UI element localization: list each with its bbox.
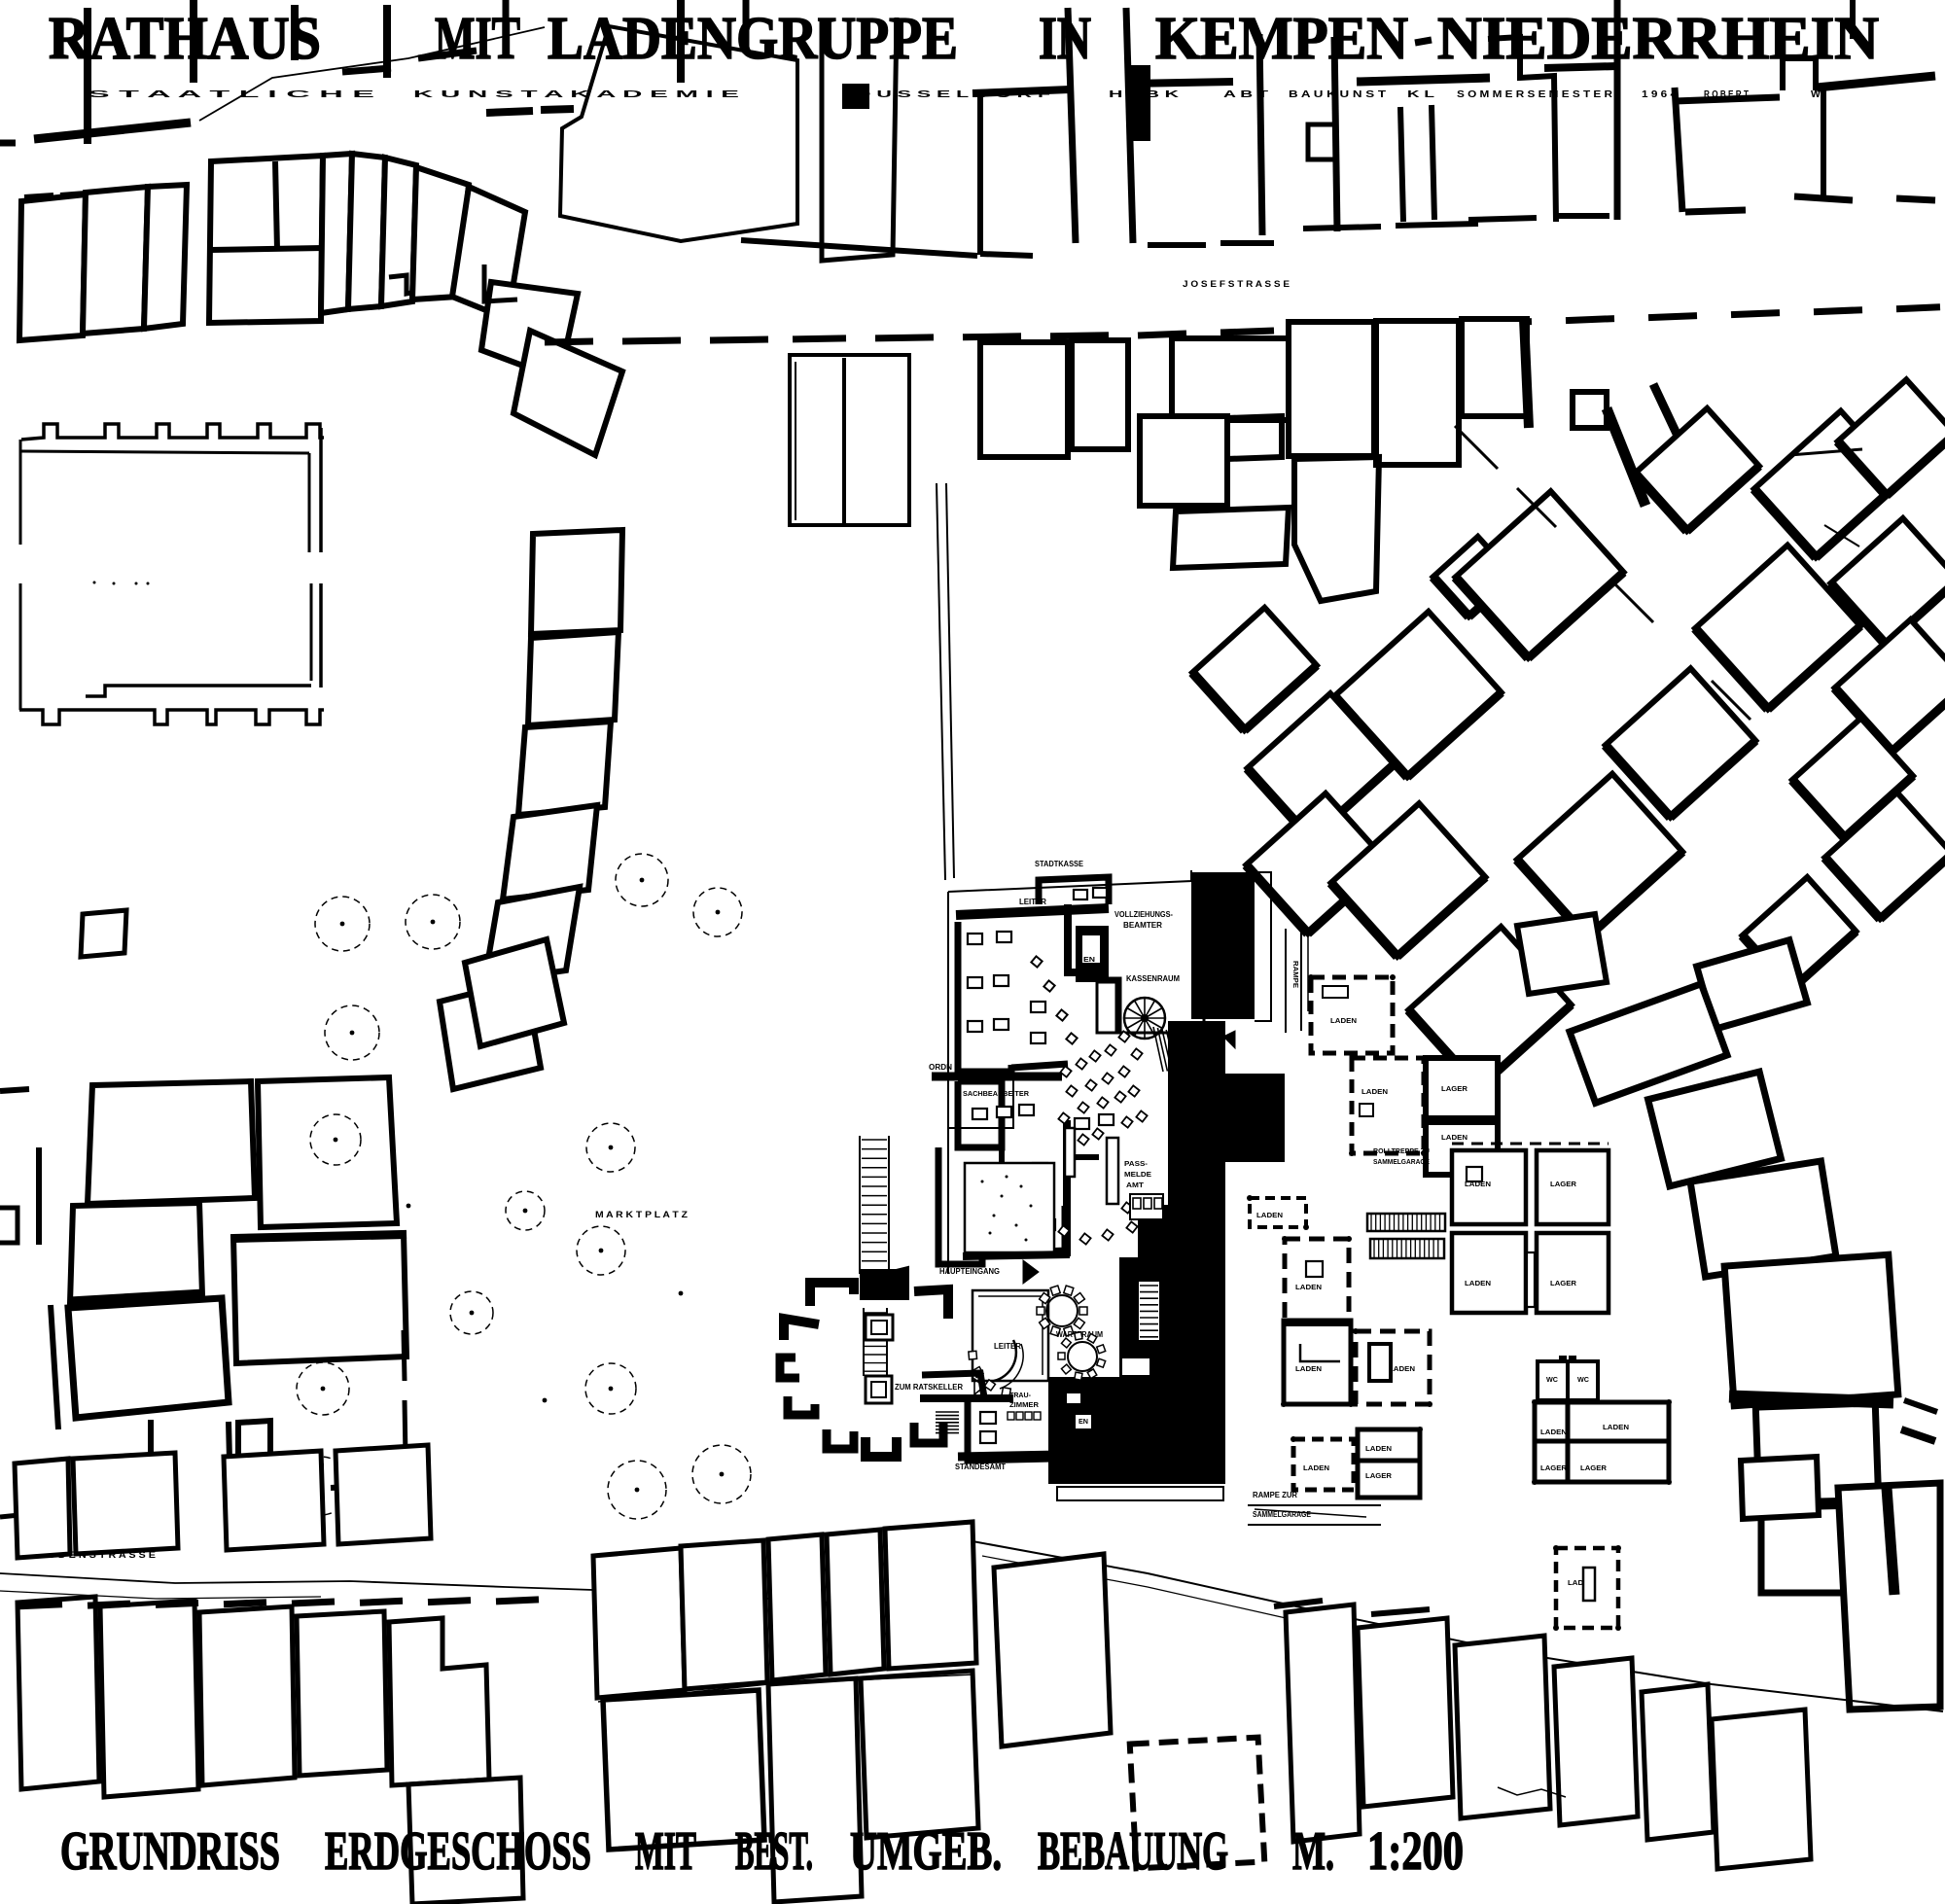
svg-text:1:200: 1:200 bbox=[1367, 1821, 1464, 1882]
svg-text:LADEN: LADEN bbox=[1465, 1279, 1491, 1287]
svg-text:PASS-: PASS- bbox=[1124, 1159, 1149, 1168]
svg-text:ZUM RATSKELLER: ZUM RATSKELLER bbox=[895, 1383, 963, 1392]
svg-text:WC: WC bbox=[1546, 1377, 1558, 1384]
svg-text:LAGER: LAGER bbox=[1365, 1471, 1393, 1480]
svg-text:LADEN: LADEN bbox=[1330, 1016, 1357, 1025]
svg-text:WC: WC bbox=[1577, 1377, 1589, 1384]
svg-text:NIEDERRHEIN: NIEDERRHEIN bbox=[1437, 6, 1879, 72]
svg-text:VOLLZIEHUNGS-: VOLLZIEHUNGS- bbox=[1114, 910, 1173, 919]
svg-text:RAMPE: RAMPE bbox=[1291, 961, 1300, 988]
svg-text:M A R K T P L A T Z: M A R K T P L A T Z bbox=[595, 1210, 689, 1219]
svg-text:ORDN: ORDN bbox=[929, 1063, 952, 1072]
svg-text:STADTKASSE: STADTKASSE bbox=[1035, 859, 1083, 868]
svg-text:BEAMTER: BEAMTER bbox=[1123, 921, 1162, 930]
svg-text:S T A A T L I C H E: S T A A T L I C H E bbox=[88, 88, 374, 100]
svg-text:LADEN: LADEN bbox=[1389, 1364, 1415, 1373]
svg-text:W: W bbox=[1811, 88, 1821, 100]
svg-text:LAGER: LAGER bbox=[1550, 1180, 1577, 1188]
svg-text:IN: IN bbox=[1039, 6, 1091, 72]
svg-text:M.: M. bbox=[1292, 1821, 1334, 1882]
svg-text:LADEN: LADEN bbox=[1603, 1423, 1629, 1431]
svg-text:LAGER: LAGER bbox=[1441, 1084, 1468, 1093]
svg-text:LADEN: LADEN bbox=[1361, 1087, 1388, 1096]
svg-text:1 9 6 4: 1 9 6 4 bbox=[1642, 88, 1677, 100]
svg-text:LADEN: LADEN bbox=[1256, 1211, 1283, 1219]
svg-text:A B T: A B T bbox=[1223, 88, 1269, 100]
svg-text:RAMPE ZUR: RAMPE ZUR bbox=[1253, 1491, 1297, 1499]
svg-text:LADEN: LADEN bbox=[1295, 1364, 1322, 1373]
svg-text:AMT: AMT bbox=[1126, 1181, 1144, 1189]
svg-text:LAGER: LAGER bbox=[1580, 1463, 1608, 1472]
svg-text:S O M M E R S E M E S T E R: S O M M E R S E M E S T E R bbox=[1457, 89, 1613, 100]
svg-text:SAMMELGARAGE: SAMMELGARAGE bbox=[1373, 1157, 1430, 1166]
svg-text:UMGEB.: UMGEB. bbox=[850, 1821, 1002, 1882]
svg-text:K U N S T A K A D E M I E: K U N S T A K A D E M I E bbox=[413, 88, 739, 100]
svg-text:MIT: MIT bbox=[435, 6, 520, 72]
svg-text:LADEN: LADEN bbox=[1303, 1463, 1329, 1472]
svg-text:LADEN: LADEN bbox=[1540, 1428, 1567, 1436]
svg-text:BEST.: BEST. bbox=[735, 1821, 813, 1882]
svg-text:KASSENRAUM: KASSENRAUM bbox=[1126, 974, 1180, 983]
svg-text:ERDGESCHOSS: ERDGESCHOSS bbox=[325, 1821, 591, 1882]
svg-text:EN: EN bbox=[1083, 957, 1095, 964]
svg-text:MELDE: MELDE bbox=[1124, 1170, 1151, 1179]
svg-text:B A U K U N S T: B A U K U N S T bbox=[1289, 88, 1387, 100]
svg-text:LAGER: LAGER bbox=[1540, 1463, 1568, 1472]
svg-text:GRUNDRISS: GRUNDRISS bbox=[60, 1821, 280, 1882]
svg-text:HAUPTEINGANG: HAUPTEINGANG bbox=[939, 1266, 1000, 1276]
svg-text:LAGER: LAGER bbox=[1550, 1279, 1577, 1287]
svg-text:LADENGRUPPE: LADENGRUPPE bbox=[548, 6, 958, 72]
svg-text:BEBAUUNG: BEBAUUNG bbox=[1038, 1821, 1228, 1882]
svg-text:R O B E R T: R O B E R T bbox=[1704, 88, 1749, 100]
svg-text:MIT: MIT bbox=[635, 1821, 696, 1882]
svg-text:SACHBEARBEITER: SACHBEARBEITER bbox=[963, 1089, 1030, 1098]
svg-text:LADEN: LADEN bbox=[1295, 1283, 1322, 1291]
svg-text:TEL: TEL bbox=[1068, 1381, 1082, 1390]
svg-text:KEMPEN: KEMPEN bbox=[1155, 6, 1408, 72]
svg-text:J O S E F S T R A S S E: J O S E F S T R A S S E bbox=[1183, 279, 1290, 289]
svg-text:EN: EN bbox=[1079, 1419, 1088, 1426]
svg-text:LADEN: LADEN bbox=[1365, 1444, 1392, 1453]
svg-text:K L: K L bbox=[1407, 88, 1435, 100]
svg-text:ZIMMER: ZIMMER bbox=[1009, 1400, 1040, 1409]
svg-text:LADEN: LADEN bbox=[1441, 1133, 1468, 1142]
svg-text:LEITER: LEITER bbox=[1019, 898, 1046, 906]
svg-text:H F B K: H F B K bbox=[1109, 88, 1180, 100]
svg-text:D U S S E L D O R F: D U S S E L D O R F bbox=[856, 88, 1051, 100]
svg-text:STANDESAMT: STANDESAMT bbox=[955, 1462, 1007, 1471]
svg-text:RATHAUS: RATHAUS bbox=[49, 6, 321, 72]
